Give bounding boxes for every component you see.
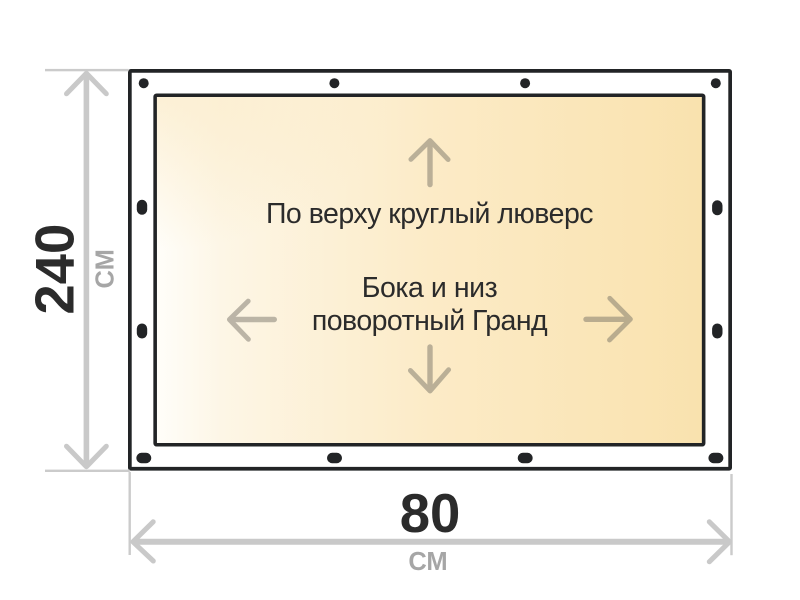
svg-text:240: 240 bbox=[25, 224, 86, 315]
svg-text:80: 80 bbox=[400, 483, 461, 544]
svg-text:СМ: СМ bbox=[92, 249, 120, 288]
svg-text:поворотный Гранд: поворотный Гранд bbox=[312, 305, 548, 337]
svg-text:Бока и низ: Бока и низ bbox=[362, 272, 497, 304]
svg-text:СМ: СМ bbox=[408, 548, 447, 576]
svg-text:По верху круглый люверс: По верху круглый люверс bbox=[266, 198, 593, 230]
